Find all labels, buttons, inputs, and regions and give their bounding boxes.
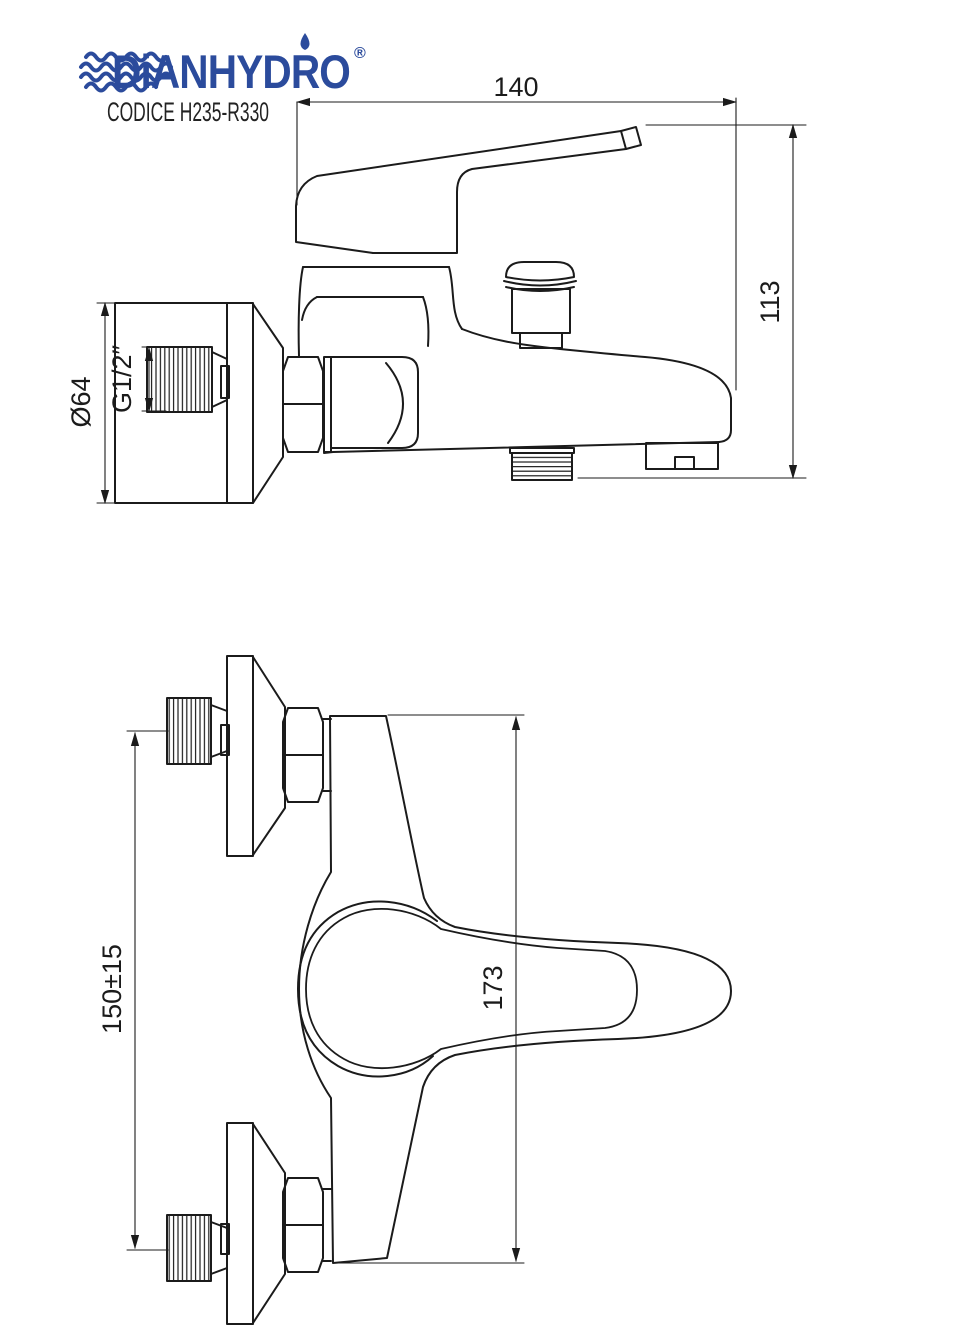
dim-thread-label: G1/2″ [107,345,137,414]
dim-flange-label: Ø64 [66,376,96,427]
plan-view: 150±15 173 [97,656,731,1324]
lever-underside [373,149,626,253]
lever-outline [296,131,621,253]
body-cap-seam [386,363,403,443]
flange-cone [253,1124,285,1323]
body-top-edge [462,329,731,442]
plan-view-dimensions [127,715,524,1263]
diverter-knob [504,262,576,348]
body-ring [324,357,331,452]
registered-mark: ® [354,45,366,62]
technical-drawing-page: DiANHYDRO ® CODICE H235-R330 [0,0,973,1334]
lever-tip-cap [621,127,641,149]
flange-edge [227,656,253,856]
dim-width-label: 140 [493,72,538,102]
threaded-nipple [167,698,211,764]
handle-dome-inner-teardrop [306,909,637,1068]
product-code: CODICE H235-R330 [107,97,269,127]
body-silhouette [299,716,731,1263]
cartridge-collar [299,267,462,356]
lever-handle [296,127,641,253]
plan-body [298,716,731,1263]
wall-union [115,303,323,503]
wall-union-upper [167,656,331,856]
wall-union-lower [167,1123,331,1324]
flange-edge [227,1123,253,1324]
brand-logo: DiANHYDRO ® CODICE H235-R330 [81,33,366,127]
threaded-nipple [167,1215,211,1281]
side-view: 140 113 Ø64 G1/2″ [66,72,806,503]
body-left-cap [331,357,418,448]
spout-aerator [646,443,718,469]
dim-height-label: 113 [755,280,785,323]
handle-dome-outer [298,901,437,1076]
dim-centers-label: 150±15 [97,944,127,1034]
shower-hose-connector [510,448,574,480]
faucet-technical-drawing: DiANHYDRO ® CODICE H235-R330 [0,0,973,1334]
flange-cone [253,304,283,503]
threaded-nipple [147,347,212,412]
brand-name: DiANHYDRO [112,45,350,98]
flange-cone [253,657,285,855]
dim-length-label: 173 [478,965,508,1010]
